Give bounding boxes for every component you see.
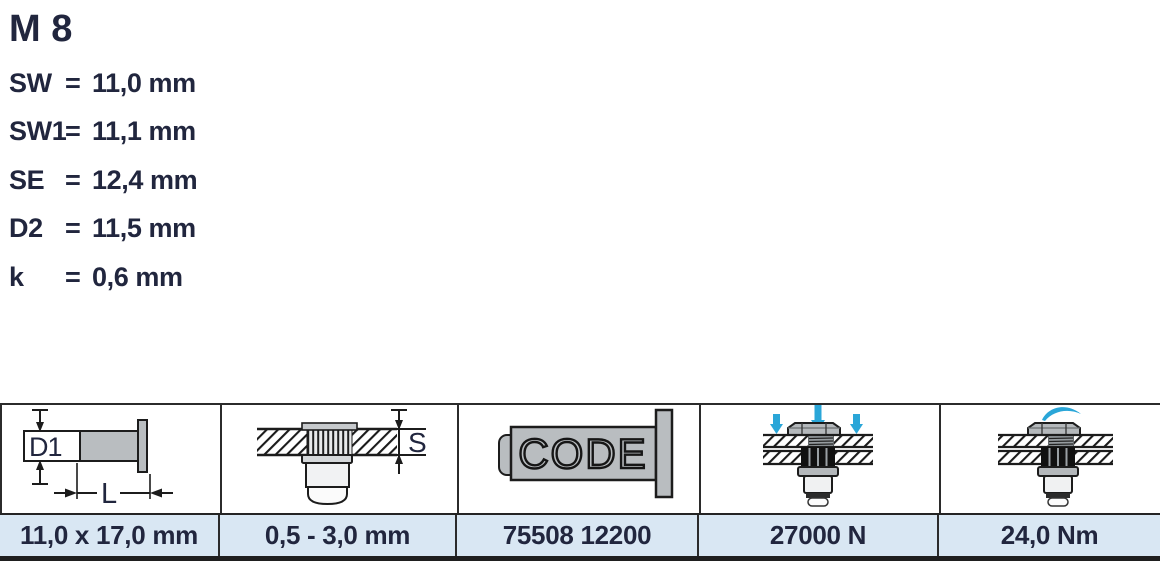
diameter-label: D1: [29, 432, 62, 462]
torque-diagram-icon: [941, 405, 1160, 513]
code-diagram-icon: CODE: [459, 405, 699, 513]
table-bottom-border: [0, 556, 1160, 561]
spec-row-sw1: SW1 = 11,1 mm: [9, 108, 289, 157]
article-code-cell: CODE: [457, 405, 699, 513]
spec-value: 11,1 mm: [92, 116, 196, 147]
spec-label: D2: [9, 213, 65, 244]
max-torque-cell: [939, 405, 1160, 513]
spec-list: M 8 SW = 11,0 mm SW1 = 11,1 mm SE = 12,4…: [9, 8, 72, 50]
equals-sign: =: [65, 262, 92, 293]
dimension-diagram-icon: D1 L: [2, 405, 220, 513]
spec-label: SW: [9, 68, 65, 99]
spec-table: D1 L: [0, 403, 1160, 561]
spec-row-se: SE = 12,4 mm: [9, 156, 289, 205]
tensile-force-diagram-icon: [701, 405, 939, 513]
thread-size-title: M 8: [9, 8, 72, 50]
spec-row-k: k = 0,6 mm: [9, 253, 289, 302]
spec-value: 11,0 mm: [92, 68, 196, 99]
spec-row-d2: D2 = 11,5 mm: [9, 205, 289, 254]
spec-label: SE: [9, 165, 65, 196]
equals-sign: =: [65, 68, 92, 99]
article-code-value: 75508 12200: [455, 515, 697, 556]
value-row: 11,0 x 17,0 mm 0,5 - 3,0 mm 75508 12200 …: [0, 513, 1160, 556]
spec-label: SW1: [9, 116, 65, 147]
grip-range-value: 0,5 - 3,0 mm: [218, 515, 455, 556]
drawing-row: D1 L: [0, 405, 1160, 513]
rivet-nut-datasheet: M 8 SW = 11,0 mm SW1 = 11,1 mm SE = 12,4…: [0, 0, 1160, 561]
spec-value: 11,5 mm: [92, 213, 196, 244]
spec-value: 12,4 mm: [92, 165, 197, 196]
tensile-strength-value: 27000 N: [697, 515, 937, 556]
grip-range-diagram-icon: S: [222, 405, 457, 513]
length-label: L: [101, 478, 117, 510]
tensile-strength-cell: [699, 405, 939, 513]
max-torque-value: 24,0 Nm: [937, 515, 1160, 556]
spec-value: 0,6 mm: [92, 262, 183, 293]
spec-label: k: [9, 262, 65, 293]
spec-rows: SW = 11,0 mm SW1 = 11,1 mm SE = 12,4 mm …: [9, 59, 289, 302]
grip-label: S: [408, 427, 427, 458]
torque-arrow-icon: [1042, 407, 1081, 421]
dimensions-value: 11,0 x 17,0 mm: [0, 515, 218, 556]
dimensions-cell: D1 L: [2, 405, 220, 513]
equals-sign: =: [65, 165, 92, 196]
code-label: CODE: [518, 430, 647, 477]
grip-range-cell: S: [220, 405, 457, 513]
equals-sign: =: [65, 116, 92, 147]
spec-row-sw: SW = 11,0 mm: [9, 59, 289, 108]
equals-sign: =: [65, 213, 92, 244]
